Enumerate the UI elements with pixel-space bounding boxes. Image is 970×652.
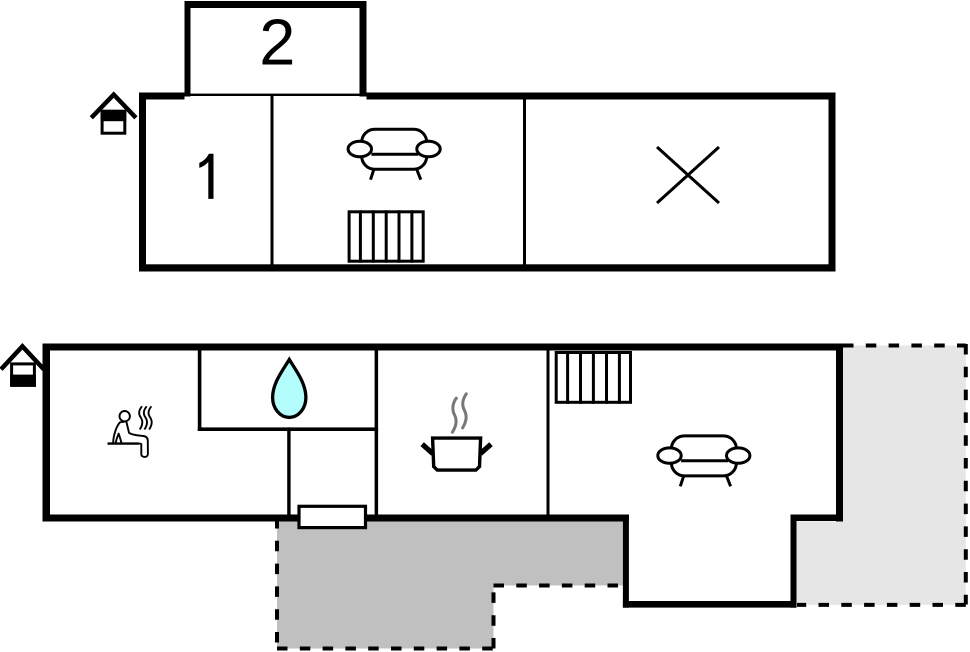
svg-text:2: 2 [259, 5, 295, 78]
